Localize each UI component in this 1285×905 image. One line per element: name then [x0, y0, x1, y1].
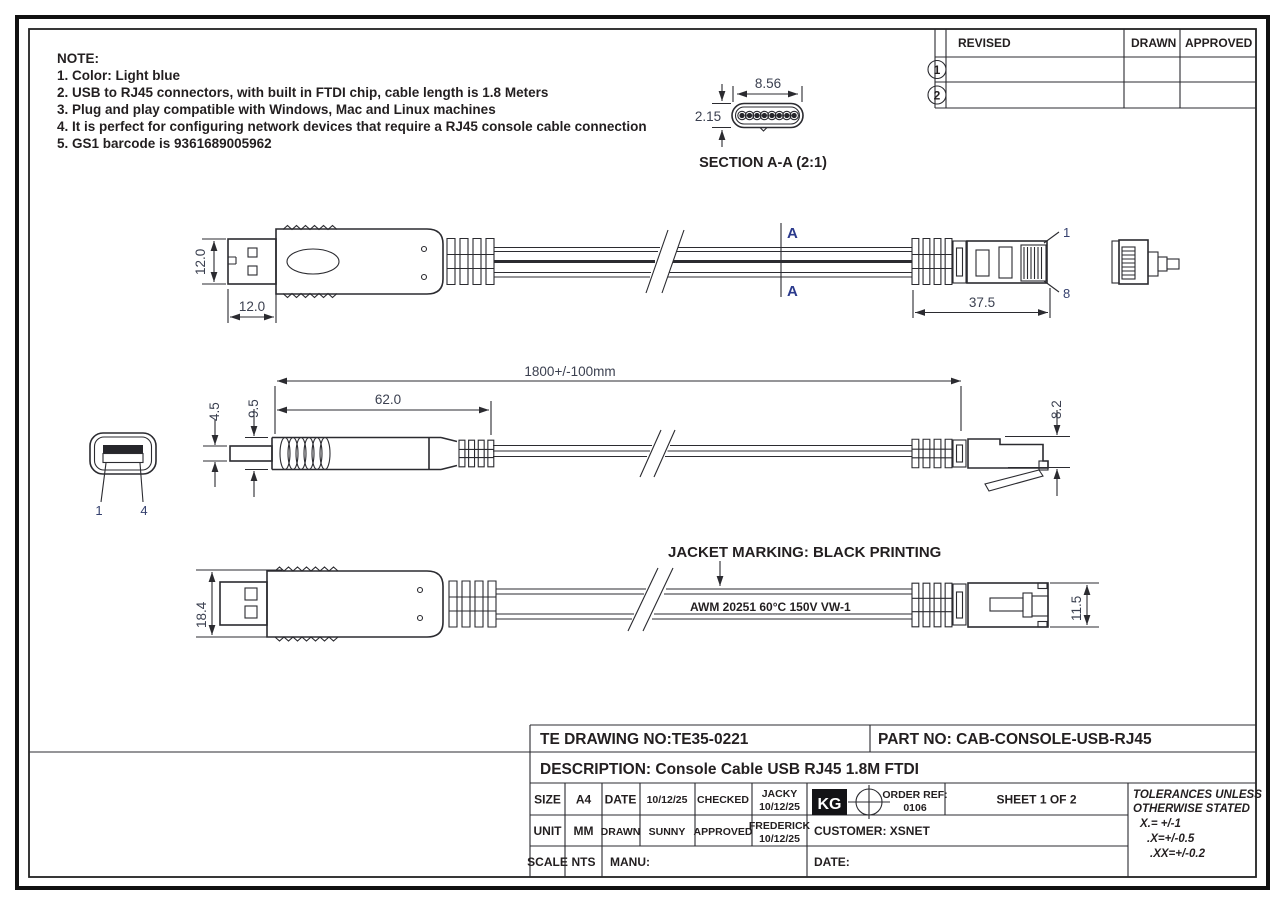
- unit-value: MM: [574, 824, 594, 838]
- order-ref-value: 0106: [903, 802, 927, 814]
- scale-label: SCALE: [527, 855, 568, 869]
- section-marker-top: A: [787, 225, 798, 242]
- cable-cross-section: [732, 104, 803, 132]
- logo-text: KG: [818, 796, 842, 813]
- note-item-5: 5. GS1 barcode is 9361689005962: [57, 136, 272, 151]
- tolerance-line-4: .X=+/-0.5: [1147, 833, 1195, 845]
- order-ref-label: ORDER REF:: [882, 789, 947, 801]
- sheet-number: SHEET 1 OF 2: [996, 793, 1076, 807]
- section-width-dim: 8.56: [755, 76, 781, 91]
- section-aa-view: 8.56 2.15 SECTION A-A (2:1): [695, 76, 827, 171]
- checked-label: CHECKED: [697, 794, 749, 806]
- section-marker-bottom: A: [787, 283, 798, 300]
- view-bottom: 18.4 JACKET MARKING: BLACK PRINTING AWM …: [194, 544, 1099, 641]
- top-shell-width-dim: 12.0: [239, 299, 265, 314]
- checked-by: JACKY: [762, 788, 798, 800]
- tolerance-line-1: TOLERANCES UNLESS: [1133, 789, 1262, 801]
- revision-table: REVISED DRAWN APPROVED 1 2: [928, 29, 1256, 108]
- part-number: PART NO: CAB-CONSOLE-USB-RJ45: [878, 731, 1152, 748]
- rj45-plug-profile: [912, 439, 1048, 491]
- note-item-2: 2. USB to RJ45 connectors, with built in…: [57, 85, 548, 100]
- drawn-label: DRAWN: [601, 826, 641, 838]
- customer-field: CUSTOMER: XSNET: [814, 824, 930, 838]
- checked-date: 10/12/25: [759, 801, 800, 813]
- jacket-marking-text: AWM 20251 60°C 150V VW-1: [690, 600, 851, 614]
- note-item-4: 4. It is perfect for configuring network…: [57, 119, 647, 134]
- usb-plug-profile: [230, 438, 494, 470]
- revision-header-approved: APPROVED: [1185, 36, 1253, 50]
- usb-strain-relief: [447, 239, 494, 285]
- rj45-length-dim: 37.5: [969, 295, 995, 310]
- rj45-width-dim: 11.5: [1069, 596, 1084, 621]
- overmold-height-dim: 18.4: [194, 601, 209, 628]
- scale-value: NTS: [572, 855, 596, 869]
- drawing-number: TE DRAWING NO:TE35-0221: [540, 731, 749, 748]
- size-label: SIZE: [534, 793, 561, 807]
- date-field-label: DATE:: [814, 855, 850, 869]
- rj45-plug-side: 1 8: [912, 225, 1070, 301]
- date-label: DATE: [605, 793, 637, 807]
- rj45-plug-top: [912, 583, 1048, 627]
- date-value: 10/12/25: [647, 794, 688, 806]
- approved-date: 10/12/25: [759, 833, 800, 845]
- top-height-dim: 12.0: [193, 249, 208, 275]
- unit-label: UNIT: [534, 824, 563, 838]
- overmold-logo-oval: [287, 249, 339, 274]
- tolerance-line-2: OTHERWISE STATED: [1133, 803, 1250, 815]
- section-label: SECTION A-A (2:1): [699, 155, 827, 171]
- rj45-height-dim: 8.2: [1049, 400, 1064, 419]
- usb-overmold-body: [276, 226, 443, 298]
- approved-by: FREDERICK: [749, 820, 811, 832]
- overall-length-dim: 1800+/-100mm: [524, 364, 615, 379]
- description: DESCRIPTION: Console Cable USB RJ45 1.8M…: [540, 761, 919, 778]
- size-value: A4: [576, 793, 592, 807]
- view-top: 12.0 12.0 A A: [193, 223, 1179, 323]
- usb-plug-top: [220, 567, 496, 641]
- drawing-sheet: NOTE: 1. Color: Light blue 2. USB to RJ4…: [0, 0, 1285, 905]
- note-item-1: 1. Color: Light blue: [57, 68, 180, 83]
- rj45-pin8-label: 8: [1063, 286, 1070, 301]
- usb-pin4-label: 4: [140, 503, 147, 518]
- tolerance-line-5: .XX=+/-0.2: [1150, 848, 1206, 860]
- title-block: TE DRAWING NO:TE35-0221 PART NO: CAB-CON…: [29, 725, 1262, 877]
- cable-break-symbol: [628, 568, 673, 631]
- revision-header-revised: REVISED: [958, 36, 1011, 50]
- cable-run-top: [494, 230, 912, 293]
- body-height-dim: 9.5: [246, 399, 261, 418]
- rj45-latch: [985, 470, 1043, 491]
- usb-front-view: 1 4: [90, 433, 156, 518]
- rj45-front-view: [1112, 240, 1179, 284]
- usb-plug-shell: [228, 239, 276, 284]
- notes-title: NOTE:: [57, 51, 99, 66]
- drawn-by: SUNNY: [649, 826, 686, 838]
- tolerances-note: TOLERANCES UNLESS OTHERWISE STATED X.= +…: [1133, 789, 1262, 860]
- revision-row1-number: 1: [934, 63, 941, 77]
- view-middle: 1 4 1800+/-100mm 62.0 4.5 9.5: [90, 364, 1070, 518]
- section-height-dim: 2.15: [695, 109, 721, 124]
- notes-block: NOTE: 1. Color: Light blue 2. USB to RJ4…: [57, 51, 647, 151]
- revision-row2-number: 2: [934, 89, 941, 103]
- jacket-marking-callout: JACKET MARKING: BLACK PRINTING: [668, 544, 941, 561]
- company-logo: KG: [812, 785, 890, 819]
- rj45-latch-top: [990, 598, 1023, 611]
- body-length-dim: 62.0: [375, 392, 401, 407]
- note-item-3: 3. Plug and play compatible with Windows…: [57, 102, 496, 117]
- manu-label: MANU:: [610, 855, 650, 869]
- shell-height-dim: 4.5: [207, 402, 222, 421]
- usb-pin1-label: 1: [95, 503, 102, 518]
- overmold-corrugation: [280, 438, 330, 470]
- cable-break-symbol: [640, 430, 675, 477]
- rj45-pin1-label: 1: [1063, 225, 1070, 240]
- rj45-contact-area: [1021, 245, 1046, 281]
- usb-contact-tongue: [103, 445, 143, 454]
- cable-run-middle: [493, 430, 912, 477]
- approved-label: APPROVED: [694, 826, 753, 838]
- drawing-canvas: NOTE: 1. Color: Light blue 2. USB to RJ4…: [0, 0, 1285, 905]
- revision-header-drawn: DRAWN: [1131, 36, 1176, 50]
- tolerance-line-3: X.= +/-1: [1139, 818, 1181, 830]
